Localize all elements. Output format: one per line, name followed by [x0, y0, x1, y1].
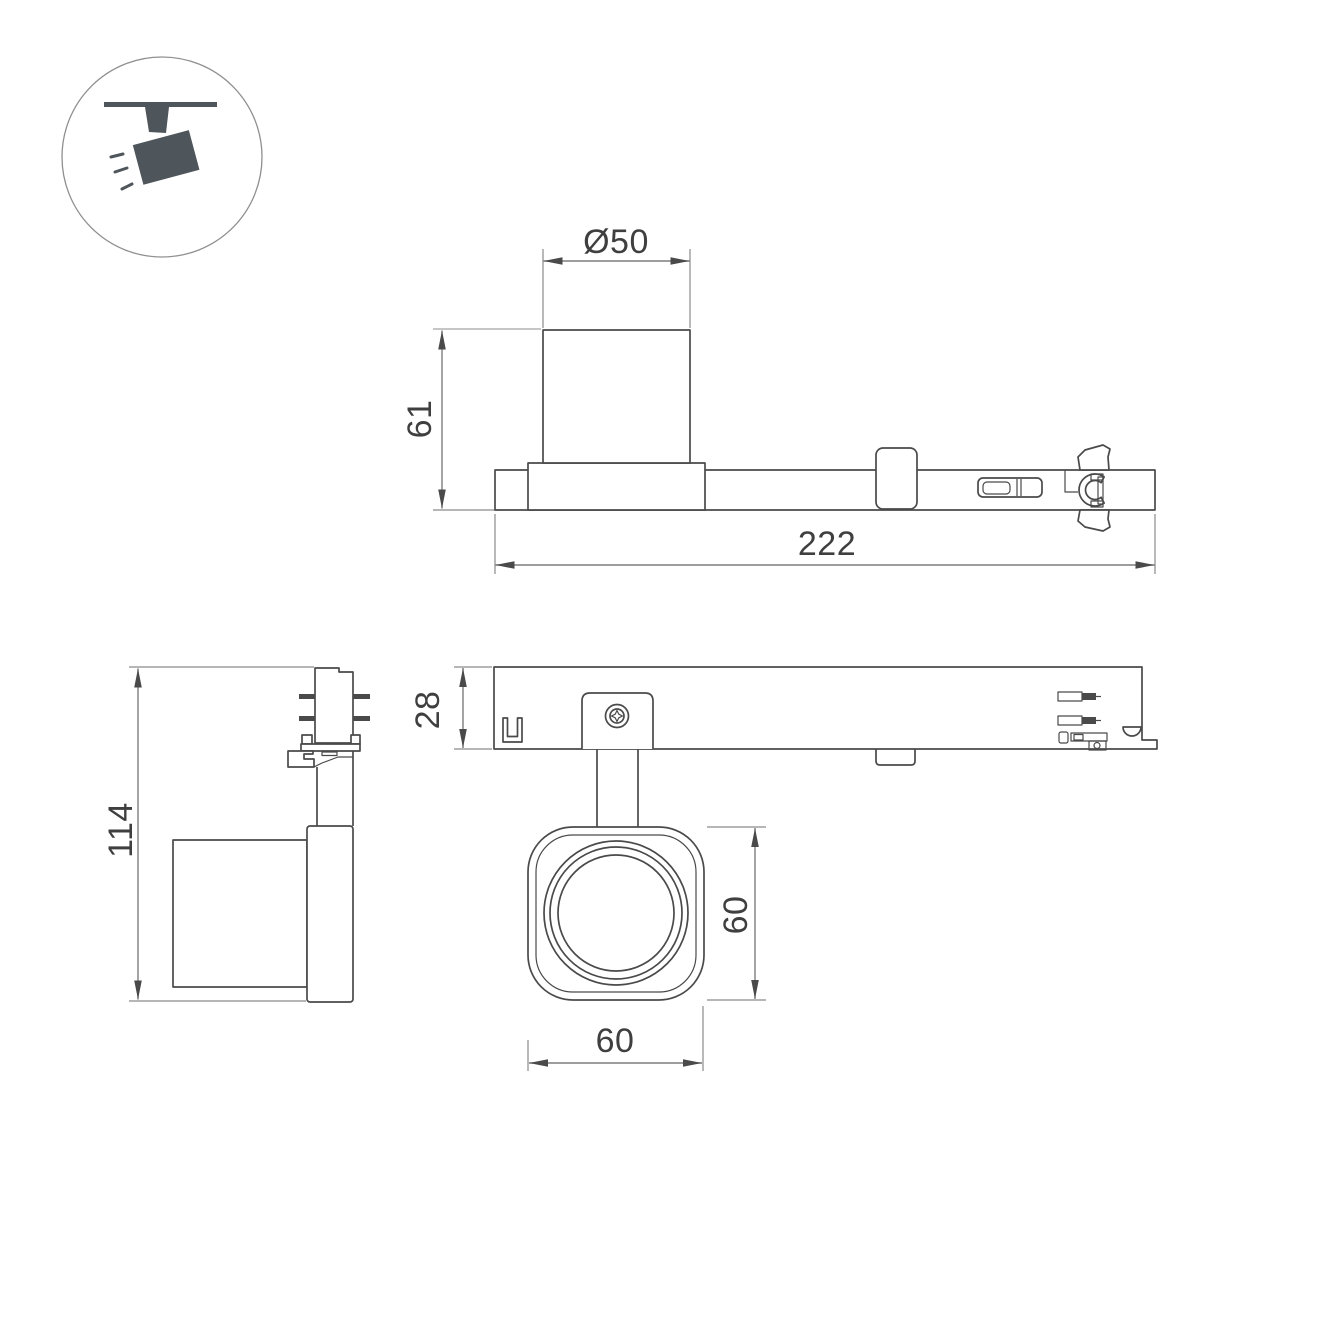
- connector-tab-left: [302, 735, 312, 744]
- dim-total-height: 114: [102, 802, 140, 858]
- lamp-base-side: [528, 463, 705, 510]
- icon-stem: [145, 107, 169, 133]
- rail-bump-block: [876, 448, 917, 509]
- front-view-drawing: 114: [102, 667, 370, 1002]
- head-outer-squircle: [528, 827, 704, 1000]
- track-connector-body: [315, 668, 353, 743]
- top-view-drawing: 28 60 60: [409, 667, 1157, 1071]
- drawing-canvas: Ø50 61 222 114: [0, 0, 1331, 1331]
- dim-lens-diameter: Ø50: [583, 223, 649, 261]
- mount-chamfer: [314, 757, 353, 767]
- lamp-head-top: [528, 827, 704, 1000]
- dim-head-height: 61: [401, 400, 439, 439]
- fixture-type-icon: [62, 57, 262, 257]
- latch-bottom-tab: [1078, 510, 1110, 531]
- mount-hook: [288, 751, 314, 767]
- latch-top-tab: [1078, 445, 1110, 470]
- side-view-drawing: Ø50 61 222: [401, 223, 1155, 574]
- dim-track-length: 222: [798, 525, 856, 563]
- mount-slot: [322, 752, 337, 756]
- rail-switch: [978, 478, 1042, 497]
- rail-bottom-tab: [876, 749, 915, 765]
- technical-drawing-sheet: Ø50 61 222 114: [0, 0, 1331, 1331]
- dim-body-width: 28: [409, 691, 447, 730]
- connector-tab-right: [351, 735, 360, 744]
- connector-plate: [301, 744, 360, 751]
- dim-head-size-horizontal: 60: [596, 1022, 635, 1060]
- mount-arm-profile: [307, 826, 353, 1002]
- dim-head-size-vertical: 60: [717, 896, 755, 935]
- lamp-body-profile: [173, 840, 307, 987]
- lamp-cylinder-side: [543, 330, 690, 463]
- icon-ceiling-bar: [104, 102, 217, 107]
